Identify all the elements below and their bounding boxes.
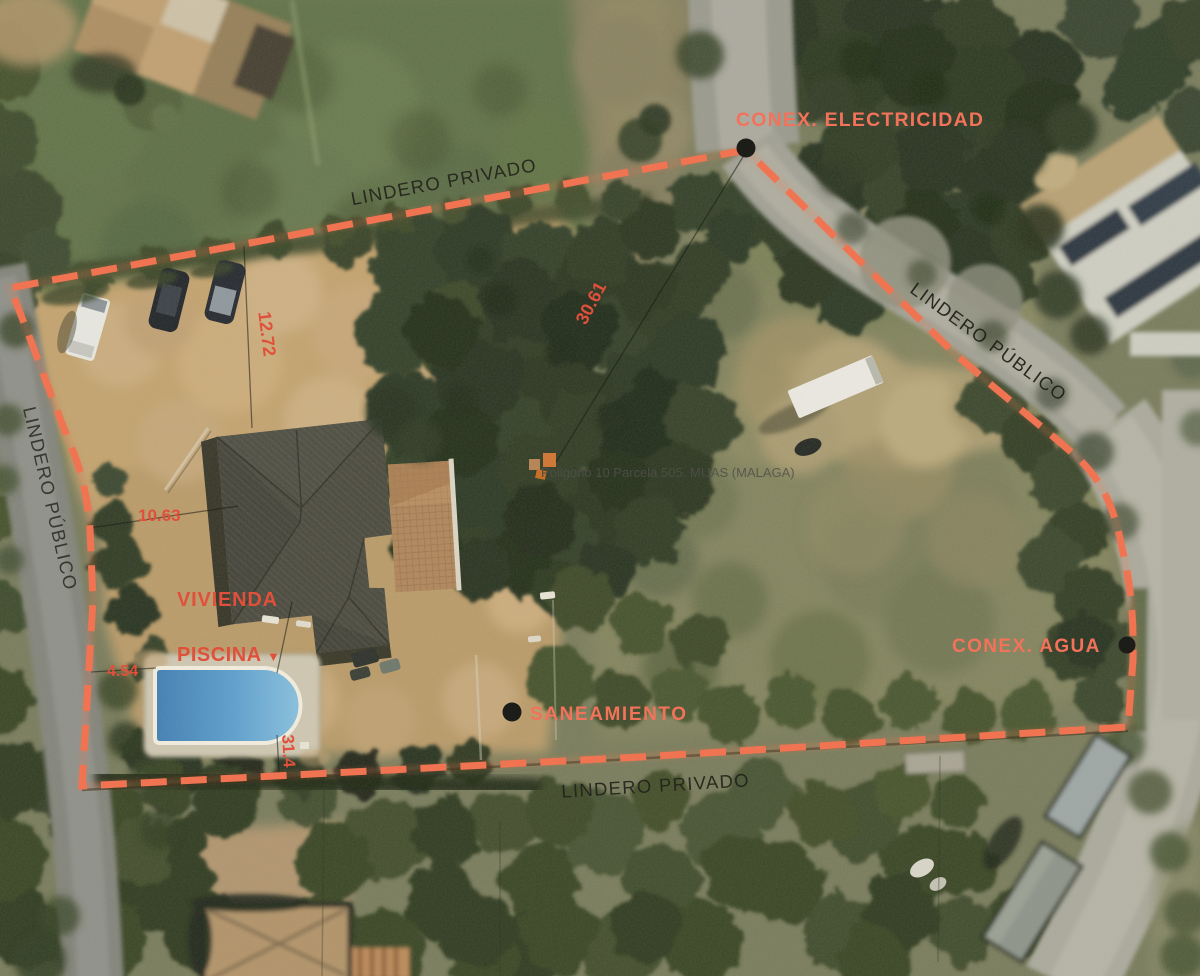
svg-text:CONEX. AGUA: CONEX. AGUA bbox=[952, 636, 1101, 657]
svg-text:PISCINA ▼: PISCINA ▼ bbox=[177, 644, 280, 666]
svg-text:Poligono 10 Parcela 505. MIJAS: Poligono 10 Parcela 505. MIJAS (MALAGA) bbox=[541, 465, 795, 480]
svg-text:4.54: 4.54 bbox=[107, 663, 138, 680]
svg-text:10.63: 10.63 bbox=[138, 506, 181, 525]
svg-text:31.4: 31.4 bbox=[278, 734, 299, 769]
svg-text:VIVIENDA: VIVIENDA bbox=[177, 589, 278, 611]
svg-text:CONEX. ELECTRICIDAD: CONEX. ELECTRICIDAD bbox=[736, 109, 984, 131]
svg-text:SANEAMIENTO: SANEAMIENTO bbox=[530, 704, 688, 725]
